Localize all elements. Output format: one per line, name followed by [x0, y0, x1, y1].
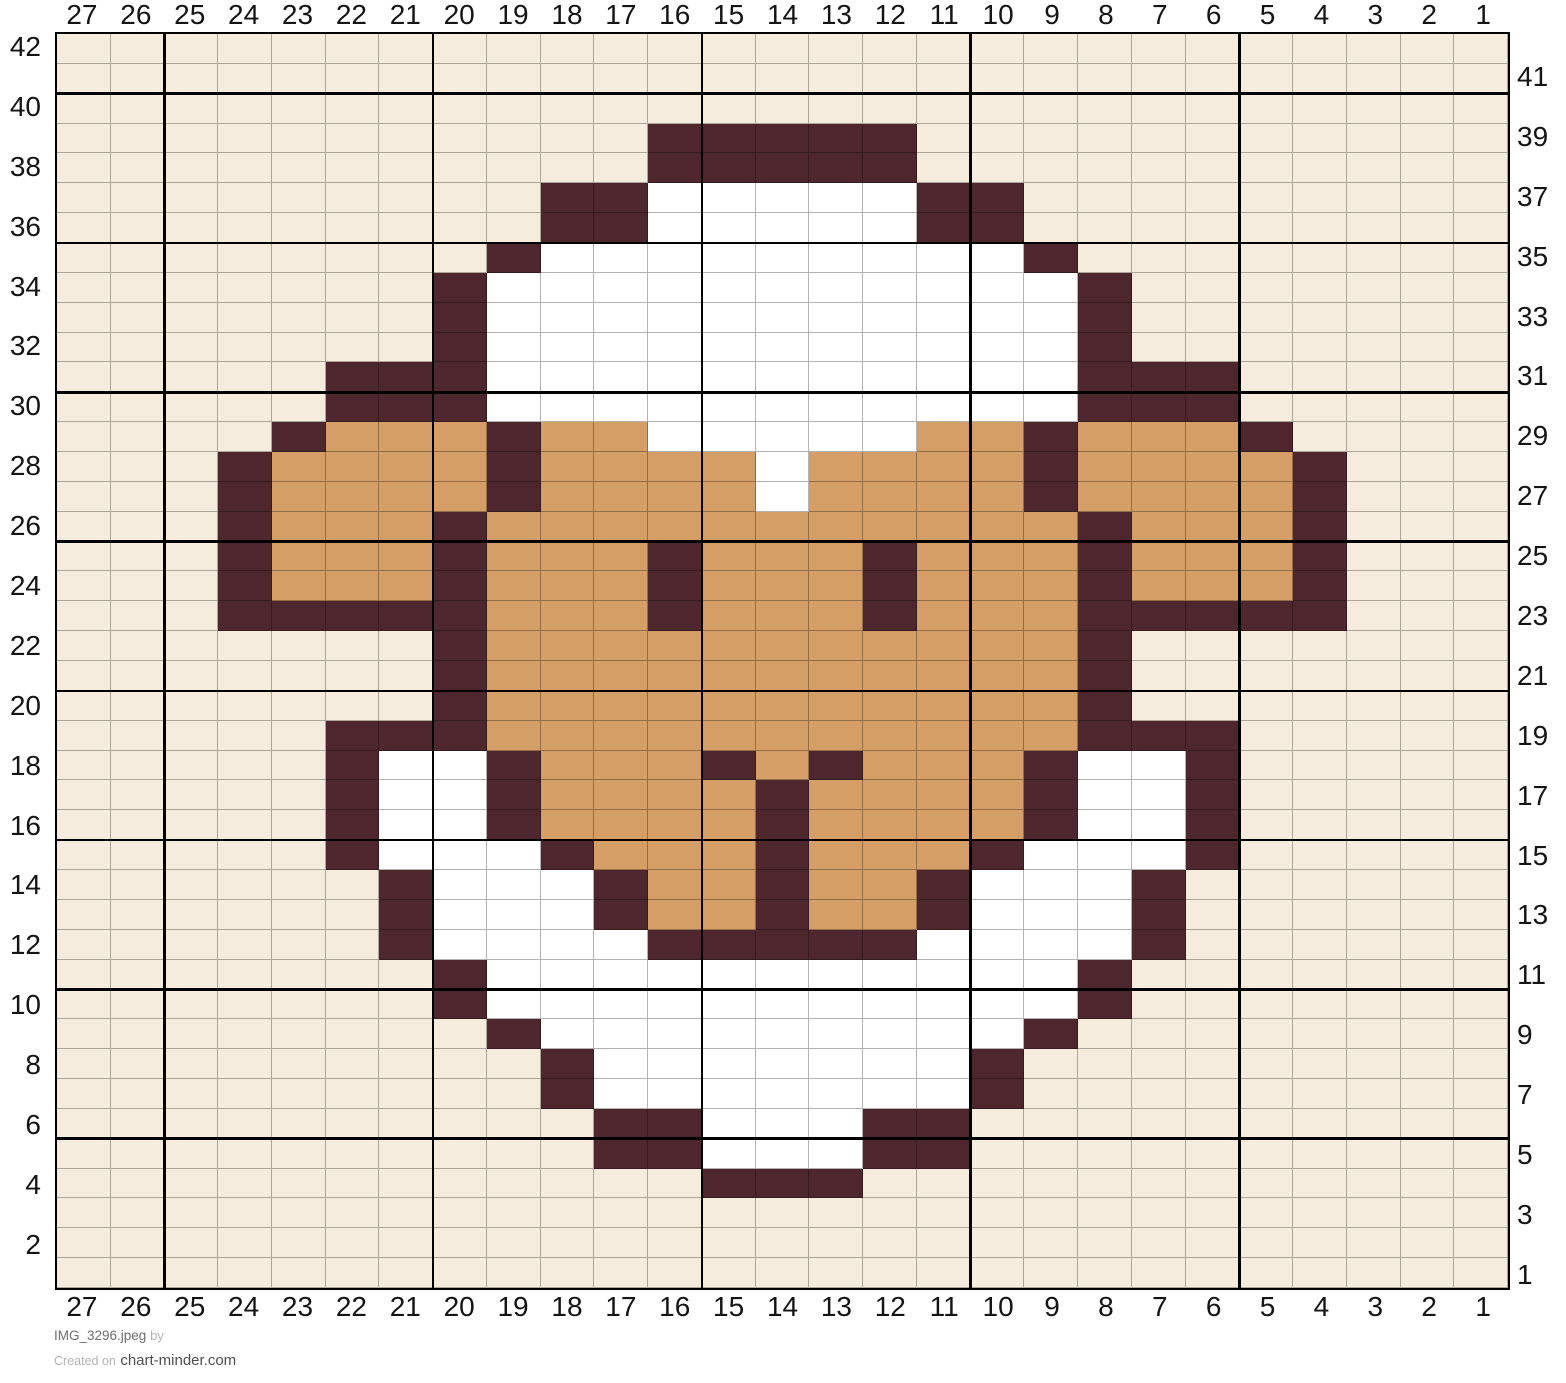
- grid-cell[interactable]: [433, 691, 487, 721]
- grid-cell[interactable]: [917, 631, 971, 661]
- grid-cell[interactable]: [756, 1109, 810, 1139]
- grid-cell[interactable]: [1186, 362, 1240, 392]
- grid-cell[interactable]: [1024, 780, 1078, 810]
- grid-cell[interactable]: [164, 661, 218, 691]
- grid-cell[interactable]: [1239, 213, 1293, 243]
- grid-cell[interactable]: [1454, 661, 1508, 691]
- grid-cell[interactable]: [433, 243, 487, 273]
- grid-cell[interactable]: [541, 124, 595, 154]
- grid-cell[interactable]: [1401, 601, 1455, 631]
- grid-cell[interactable]: [1239, 482, 1293, 512]
- grid-cell[interactable]: [809, 1079, 863, 1109]
- grid-cell[interactable]: [1239, 930, 1293, 960]
- grid-cell[interactable]: [917, 870, 971, 900]
- grid-cell[interactable]: [541, 601, 595, 631]
- grid-cell[interactable]: [164, 631, 218, 661]
- grid-cell[interactable]: [111, 1258, 165, 1288]
- grid-cell[interactable]: [1347, 94, 1401, 124]
- grid-cell[interactable]: [809, 691, 863, 721]
- grid-cell[interactable]: [648, 512, 702, 542]
- grid-cell[interactable]: [809, 153, 863, 183]
- grid-cell[interactable]: [541, 213, 595, 243]
- grid-cell[interactable]: [702, 631, 756, 661]
- grid-cell[interactable]: [702, 900, 756, 930]
- grid-cell[interactable]: [1454, 1109, 1508, 1139]
- grid-cell[interactable]: [648, 1109, 702, 1139]
- grid-cell[interactable]: [971, 452, 1025, 482]
- grid-cell[interactable]: [809, 482, 863, 512]
- grid-cell[interactable]: [433, 362, 487, 392]
- grid-cell[interactable]: [379, 34, 433, 64]
- grid-cell[interactable]: [1078, 1109, 1132, 1139]
- grid-cell[interactable]: [433, 1079, 487, 1109]
- grid-cell[interactable]: [1024, 362, 1078, 392]
- grid-cell[interactable]: [594, 571, 648, 601]
- grid-cell[interactable]: [487, 452, 541, 482]
- grid-cell[interactable]: [1454, 601, 1508, 631]
- grid-cell[interactable]: [1186, 64, 1240, 94]
- grid-cell[interactable]: [272, 124, 326, 154]
- grid-cell[interactable]: [272, 1049, 326, 1079]
- grid-cell[interactable]: [1186, 512, 1240, 542]
- grid-cell[interactable]: [487, 512, 541, 542]
- grid-cell[interactable]: [111, 303, 165, 333]
- grid-cell[interactable]: [218, 94, 272, 124]
- grid-cell[interactable]: [1293, 153, 1347, 183]
- grid-cell[interactable]: [702, 124, 756, 154]
- grid-cell[interactable]: [756, 1139, 810, 1169]
- grid-cell[interactable]: [971, 751, 1025, 781]
- grid-cell[interactable]: [111, 94, 165, 124]
- grid-cell[interactable]: [702, 691, 756, 721]
- grid-cell[interactable]: [648, 1019, 702, 1049]
- grid-cell[interactable]: [1024, 452, 1078, 482]
- grid-cell[interactable]: [1401, 333, 1455, 363]
- grid-cell[interactable]: [487, 661, 541, 691]
- grid-cell[interactable]: [971, 721, 1025, 751]
- grid-cell[interactable]: [541, 1139, 595, 1169]
- grid-cell[interactable]: [1239, 1049, 1293, 1079]
- grid-cell[interactable]: [1454, 362, 1508, 392]
- grid-cell[interactable]: [218, 1079, 272, 1109]
- grid-cell[interactable]: [57, 422, 111, 452]
- grid-cell[interactable]: [756, 362, 810, 392]
- grid-cell[interactable]: [326, 273, 380, 303]
- grid-cell[interactable]: [1132, 631, 1186, 661]
- grid-cell[interactable]: [1293, 989, 1347, 1019]
- grid-cell[interactable]: [218, 362, 272, 392]
- grid-cell[interactable]: [379, 1049, 433, 1079]
- grid-cell[interactable]: [487, 183, 541, 213]
- grid-cell[interactable]: [1401, 930, 1455, 960]
- grid-cell[interactable]: [272, 870, 326, 900]
- grid-cell[interactable]: [756, 243, 810, 273]
- grid-cell[interactable]: [326, 303, 380, 333]
- grid-cell[interactable]: [272, 810, 326, 840]
- grid-cell[interactable]: [218, 1258, 272, 1288]
- grid-cell[interactable]: [164, 213, 218, 243]
- grid-cell[interactable]: [1239, 870, 1293, 900]
- grid-cell[interactable]: [326, 1139, 380, 1169]
- grid-cell[interactable]: [1024, 64, 1078, 94]
- grid-cell[interactable]: [111, 571, 165, 601]
- grid-cell[interactable]: [111, 691, 165, 721]
- grid-cell[interactable]: [164, 780, 218, 810]
- grid-cell[interactable]: [594, 94, 648, 124]
- grid-cell[interactable]: [541, 1198, 595, 1228]
- grid-cell[interactable]: [702, 183, 756, 213]
- stitch-grid[interactable]: [55, 32, 1510, 1290]
- grid-cell[interactable]: [272, 1019, 326, 1049]
- grid-cell[interactable]: [917, 422, 971, 452]
- grid-cell[interactable]: [218, 780, 272, 810]
- grid-cell[interactable]: [326, 601, 380, 631]
- grid-cell[interactable]: [379, 1258, 433, 1288]
- grid-cell[interactable]: [1401, 422, 1455, 452]
- grid-cell[interactable]: [863, 422, 917, 452]
- grid-cell[interactable]: [756, 870, 810, 900]
- grid-cell[interactable]: [1078, 631, 1132, 661]
- grid-cell[interactable]: [218, 1228, 272, 1258]
- grid-cell[interactable]: [809, 34, 863, 64]
- grid-cell[interactable]: [1078, 64, 1132, 94]
- grid-cell[interactable]: [1132, 1019, 1186, 1049]
- grid-cell[interactable]: [218, 1049, 272, 1079]
- grid-cell[interactable]: [433, 661, 487, 691]
- grid-cell[interactable]: [326, 512, 380, 542]
- grid-cell[interactable]: [433, 213, 487, 243]
- grid-cell[interactable]: [702, 810, 756, 840]
- grid-cell[interactable]: [756, 571, 810, 601]
- grid-cell[interactable]: [863, 571, 917, 601]
- grid-cell[interactable]: [487, 1079, 541, 1109]
- grid-cell[interactable]: [756, 900, 810, 930]
- grid-cell[interactable]: [863, 273, 917, 303]
- grid-cell[interactable]: [1132, 1139, 1186, 1169]
- grid-cell[interactable]: [971, 661, 1025, 691]
- grid-cell[interactable]: [1293, 1049, 1347, 1079]
- grid-cell[interactable]: [702, 333, 756, 363]
- grid-cell[interactable]: [863, 601, 917, 631]
- grid-cell[interactable]: [433, 751, 487, 781]
- grid-cell[interactable]: [1024, 960, 1078, 990]
- grid-cell[interactable]: [594, 870, 648, 900]
- grid-cell[interactable]: [272, 64, 326, 94]
- grid-cell[interactable]: [863, 1228, 917, 1258]
- grid-cell[interactable]: [648, 661, 702, 691]
- grid-cell[interactable]: [1239, 542, 1293, 572]
- grid-cell[interactable]: [809, 810, 863, 840]
- grid-cell[interactable]: [756, 512, 810, 542]
- grid-cell[interactable]: [594, 1198, 648, 1228]
- grid-cell[interactable]: [863, 392, 917, 422]
- grid-cell[interactable]: [326, 1258, 380, 1288]
- grid-cell[interactable]: [863, 930, 917, 960]
- grid-cell[interactable]: [433, 900, 487, 930]
- grid-cell[interactable]: [164, 571, 218, 601]
- grid-cell[interactable]: [1293, 94, 1347, 124]
- grid-cell[interactable]: [541, 1169, 595, 1199]
- grid-cell[interactable]: [379, 870, 433, 900]
- grid-cell[interactable]: [433, 840, 487, 870]
- grid-cell[interactable]: [379, 900, 433, 930]
- grid-cell[interactable]: [541, 303, 595, 333]
- grid-cell[interactable]: [756, 661, 810, 691]
- grid-cell[interactable]: [971, 512, 1025, 542]
- grid-cell[interactable]: [648, 870, 702, 900]
- grid-cell[interactable]: [57, 273, 111, 303]
- grid-cell[interactable]: [1293, 721, 1347, 751]
- grid-cell[interactable]: [1186, 213, 1240, 243]
- grid-cell[interactable]: [702, 422, 756, 452]
- grid-cell[interactable]: [648, 571, 702, 601]
- grid-cell[interactable]: [1186, 303, 1240, 333]
- grid-cell[interactable]: [1401, 34, 1455, 64]
- grid-cell[interactable]: [971, 810, 1025, 840]
- grid-cell[interactable]: [1401, 124, 1455, 154]
- grid-cell[interactable]: [57, 452, 111, 482]
- grid-cell[interactable]: [809, 422, 863, 452]
- grid-cell[interactable]: [1078, 870, 1132, 900]
- grid-cell[interactable]: [917, 780, 971, 810]
- grid-cell[interactable]: [863, 1049, 917, 1079]
- grid-cell[interactable]: [326, 392, 380, 422]
- grid-cell[interactable]: [111, 1228, 165, 1258]
- grid-cell[interactable]: [917, 1019, 971, 1049]
- grid-cell[interactable]: [164, 482, 218, 512]
- grid-cell[interactable]: [111, 601, 165, 631]
- grid-cell[interactable]: [1024, 1198, 1078, 1228]
- grid-cell[interactable]: [379, 780, 433, 810]
- grid-cell[interactable]: [594, 34, 648, 64]
- grid-cell[interactable]: [218, 243, 272, 273]
- grid-cell[interactable]: [541, 571, 595, 601]
- grid-cell[interactable]: [379, 542, 433, 572]
- grid-cell[interactable]: [111, 183, 165, 213]
- grid-cell[interactable]: [218, 751, 272, 781]
- grid-cell[interactable]: [218, 153, 272, 183]
- grid-cell[interactable]: [272, 1139, 326, 1169]
- grid-cell[interactable]: [433, 631, 487, 661]
- grid-cell[interactable]: [1454, 751, 1508, 781]
- grid-cell[interactable]: [1024, 601, 1078, 631]
- grid-cell[interactable]: [433, 153, 487, 183]
- grid-cell[interactable]: [541, 870, 595, 900]
- grid-cell[interactable]: [1024, 94, 1078, 124]
- grid-cell[interactable]: [809, 930, 863, 960]
- grid-cell[interactable]: [272, 960, 326, 990]
- grid-cell[interactable]: [1293, 631, 1347, 661]
- grid-cell[interactable]: [917, 94, 971, 124]
- grid-cell[interactable]: [57, 1169, 111, 1199]
- grid-cell[interactable]: [1024, 989, 1078, 1019]
- grid-cell[interactable]: [1347, 392, 1401, 422]
- grid-cell[interactable]: [809, 213, 863, 243]
- grid-cell[interactable]: [1132, 512, 1186, 542]
- grid-cell[interactable]: [971, 303, 1025, 333]
- grid-cell[interactable]: [1454, 64, 1508, 94]
- grid-cell[interactable]: [326, 34, 380, 64]
- grid-cell[interactable]: [326, 362, 380, 392]
- grid-cell[interactable]: [702, 542, 756, 572]
- grid-cell[interactable]: [1078, 1198, 1132, 1228]
- grid-cell[interactable]: [702, 1169, 756, 1199]
- grid-cell[interactable]: [648, 631, 702, 661]
- grid-cell[interactable]: [326, 751, 380, 781]
- grid-cell[interactable]: [702, 512, 756, 542]
- grid-cell[interactable]: [1293, 1198, 1347, 1228]
- grid-cell[interactable]: [326, 721, 380, 751]
- grid-cell[interactable]: [272, 930, 326, 960]
- grid-cell[interactable]: [971, 691, 1025, 721]
- grid-cell[interactable]: [1132, 930, 1186, 960]
- grid-cell[interactable]: [702, 1198, 756, 1228]
- grid-cell[interactable]: [1454, 512, 1508, 542]
- grid-cell[interactable]: [1132, 870, 1186, 900]
- grid-cell[interactable]: [272, 1109, 326, 1139]
- grid-cell[interactable]: [1078, 1228, 1132, 1258]
- grid-cell[interactable]: [218, 512, 272, 542]
- grid-cell[interactable]: [702, 751, 756, 781]
- grid-cell[interactable]: [541, 810, 595, 840]
- grid-cell[interactable]: [111, 960, 165, 990]
- grid-cell[interactable]: [1078, 900, 1132, 930]
- grid-cell[interactable]: [1239, 392, 1293, 422]
- grid-cell[interactable]: [863, 1258, 917, 1288]
- grid-cell[interactable]: [1132, 273, 1186, 303]
- grid-cell[interactable]: [863, 124, 917, 154]
- grid-cell[interactable]: [1347, 124, 1401, 154]
- grid-cell[interactable]: [57, 1079, 111, 1109]
- grid-cell[interactable]: [917, 661, 971, 691]
- grid-cell[interactable]: [111, 840, 165, 870]
- grid-cell[interactable]: [648, 333, 702, 363]
- grid-cell[interactable]: [971, 1109, 1025, 1139]
- grid-cell[interactable]: [1454, 1139, 1508, 1169]
- grid-cell[interactable]: [917, 1198, 971, 1228]
- grid-cell[interactable]: [1401, 512, 1455, 542]
- grid-cell[interactable]: [971, 870, 1025, 900]
- grid-cell[interactable]: [433, 1198, 487, 1228]
- grid-cell[interactable]: [487, 1139, 541, 1169]
- grid-cell[interactable]: [809, 780, 863, 810]
- grid-cell[interactable]: [1347, 243, 1401, 273]
- grid-cell[interactable]: [1401, 1049, 1455, 1079]
- grid-cell[interactable]: [1401, 64, 1455, 94]
- grid-cell[interactable]: [541, 780, 595, 810]
- grid-cell[interactable]: [1454, 333, 1508, 363]
- grid-cell[interactable]: [379, 333, 433, 363]
- grid-cell[interactable]: [648, 392, 702, 422]
- grid-cell[interactable]: [326, 989, 380, 1019]
- grid-cell[interactable]: [272, 721, 326, 751]
- grid-cell[interactable]: [218, 691, 272, 721]
- grid-cell[interactable]: [1132, 1228, 1186, 1258]
- grid-cell[interactable]: [1454, 691, 1508, 721]
- grid-cell[interactable]: [326, 870, 380, 900]
- grid-cell[interactable]: [594, 900, 648, 930]
- grid-cell[interactable]: [272, 1228, 326, 1258]
- grid-cell[interactable]: [433, 1019, 487, 1049]
- grid-cell[interactable]: [1239, 840, 1293, 870]
- grid-cell[interactable]: [1401, 243, 1455, 273]
- grid-cell[interactable]: [164, 34, 218, 64]
- grid-cell[interactable]: [971, 362, 1025, 392]
- grid-cell[interactable]: [164, 1169, 218, 1199]
- grid-cell[interactable]: [218, 661, 272, 691]
- grid-cell[interactable]: [111, 870, 165, 900]
- grid-cell[interactable]: [57, 64, 111, 94]
- grid-cell[interactable]: [917, 691, 971, 721]
- grid-cell[interactable]: [1239, 153, 1293, 183]
- grid-cell[interactable]: [1132, 960, 1186, 990]
- grid-cell[interactable]: [809, 124, 863, 154]
- grid-cell[interactable]: [57, 751, 111, 781]
- grid-cell[interactable]: [272, 512, 326, 542]
- grid-cell[interactable]: [487, 392, 541, 422]
- grid-cell[interactable]: [57, 721, 111, 751]
- grid-cell[interactable]: [863, 153, 917, 183]
- grid-cell[interactable]: [1239, 362, 1293, 392]
- grid-cell[interactable]: [218, 721, 272, 751]
- grid-cell[interactable]: [1293, 1169, 1347, 1199]
- grid-cell[interactable]: [111, 124, 165, 154]
- grid-cell[interactable]: [917, 452, 971, 482]
- grid-cell[interactable]: [809, 333, 863, 363]
- grid-cell[interactable]: [379, 1019, 433, 1049]
- grid-cell[interactable]: [863, 989, 917, 1019]
- grid-cell[interactable]: [809, 751, 863, 781]
- grid-cell[interactable]: [1078, 661, 1132, 691]
- grid-cell[interactable]: [702, 362, 756, 392]
- grid-cell[interactable]: [863, 691, 917, 721]
- grid-cell[interactable]: [379, 422, 433, 452]
- grid-cell[interactable]: [1186, 870, 1240, 900]
- grid-cell[interactable]: [1132, 213, 1186, 243]
- grid-cell[interactable]: [809, 989, 863, 1019]
- grid-cell[interactable]: [433, 930, 487, 960]
- grid-cell[interactable]: [648, 183, 702, 213]
- grid-cell[interactable]: [594, 1139, 648, 1169]
- grid-cell[interactable]: [971, 1169, 1025, 1199]
- grid-cell[interactable]: [1239, 661, 1293, 691]
- grid-cell[interactable]: [1078, 840, 1132, 870]
- grid-cell[interactable]: [917, 840, 971, 870]
- grid-cell[interactable]: [917, 303, 971, 333]
- grid-cell[interactable]: [917, 810, 971, 840]
- grid-cell[interactable]: [1293, 1139, 1347, 1169]
- grid-cell[interactable]: [379, 273, 433, 303]
- grid-cell[interactable]: [1186, 34, 1240, 64]
- grid-cell[interactable]: [111, 542, 165, 572]
- grid-cell[interactable]: [57, 124, 111, 154]
- grid-cell[interactable]: [1293, 512, 1347, 542]
- grid-cell[interactable]: [1186, 691, 1240, 721]
- grid-cell[interactable]: [1024, 273, 1078, 303]
- grid-cell[interactable]: [648, 273, 702, 303]
- grid-cell[interactable]: [164, 691, 218, 721]
- grid-cell[interactable]: [541, 94, 595, 124]
- grid-cell[interactable]: [1293, 213, 1347, 243]
- grid-cell[interactable]: [272, 183, 326, 213]
- grid-cell[interactable]: [648, 1049, 702, 1079]
- grid-cell[interactable]: [702, 840, 756, 870]
- grid-cell[interactable]: [863, 333, 917, 363]
- grid-cell[interactable]: [1347, 1019, 1401, 1049]
- grid-cell[interactable]: [1078, 751, 1132, 781]
- grid-cell[interactable]: [1454, 303, 1508, 333]
- grid-cell[interactable]: [1024, 900, 1078, 930]
